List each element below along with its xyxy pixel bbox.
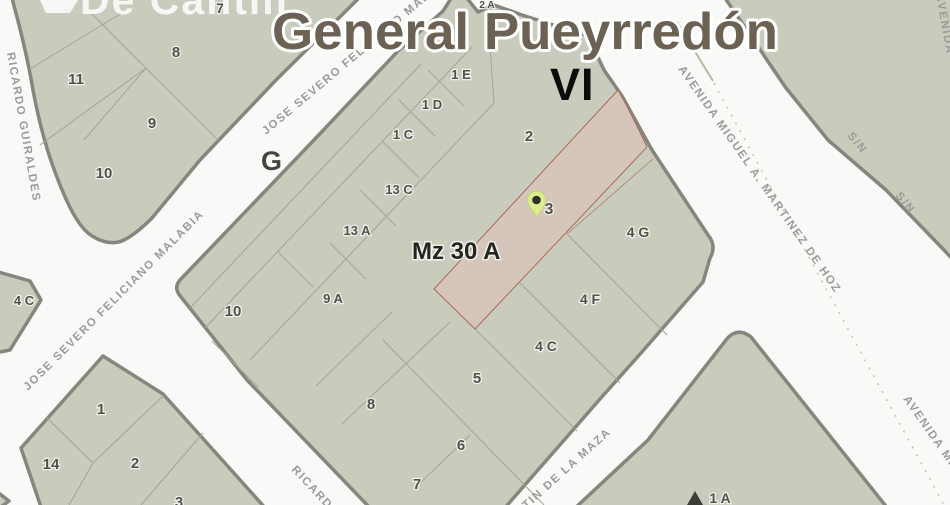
svg-text:4 C: 4 C bbox=[14, 293, 35, 308]
svg-text:4 F: 4 F bbox=[580, 291, 601, 307]
svg-text:5: 5 bbox=[473, 370, 481, 387]
svg-text:6: 6 bbox=[457, 437, 465, 454]
svg-text:9: 9 bbox=[148, 115, 156, 132]
svg-text:1 A: 1 A bbox=[709, 490, 730, 505]
svg-text:8: 8 bbox=[172, 44, 180, 61]
svg-text:14: 14 bbox=[43, 456, 60, 473]
svg-text:Mz 30 A: Mz 30 A bbox=[412, 238, 500, 265]
svg-text:3: 3 bbox=[545, 201, 554, 218]
svg-text:1 D: 1 D bbox=[422, 97, 442, 112]
svg-text:4 G: 4 G bbox=[627, 224, 650, 240]
svg-text:1: 1 bbox=[97, 401, 105, 418]
svg-text:2: 2 bbox=[131, 455, 139, 472]
svg-text:1 C: 1 C bbox=[393, 127, 414, 142]
svg-text:G: G bbox=[261, 146, 282, 176]
svg-text:De Cantili: De Cantili bbox=[80, 0, 289, 23]
svg-text:9 A: 9 A bbox=[323, 291, 343, 306]
svg-text:VI: VI bbox=[550, 59, 595, 110]
svg-text:10: 10 bbox=[225, 303, 242, 320]
svg-text:General Pueyrredón: General Pueyrredón bbox=[272, 3, 778, 61]
svg-text:1 E: 1 E bbox=[451, 67, 471, 82]
svg-text:13 A: 13 A bbox=[344, 223, 372, 238]
svg-text:11: 11 bbox=[68, 71, 84, 88]
svg-text:2: 2 bbox=[525, 128, 533, 145]
svg-text:13 C: 13 C bbox=[385, 182, 413, 197]
svg-text:3: 3 bbox=[175, 494, 183, 505]
svg-text:8: 8 bbox=[367, 396, 375, 413]
svg-text:10: 10 bbox=[96, 165, 113, 182]
svg-text:4 C: 4 C bbox=[535, 338, 557, 354]
svg-text:7: 7 bbox=[413, 476, 421, 493]
